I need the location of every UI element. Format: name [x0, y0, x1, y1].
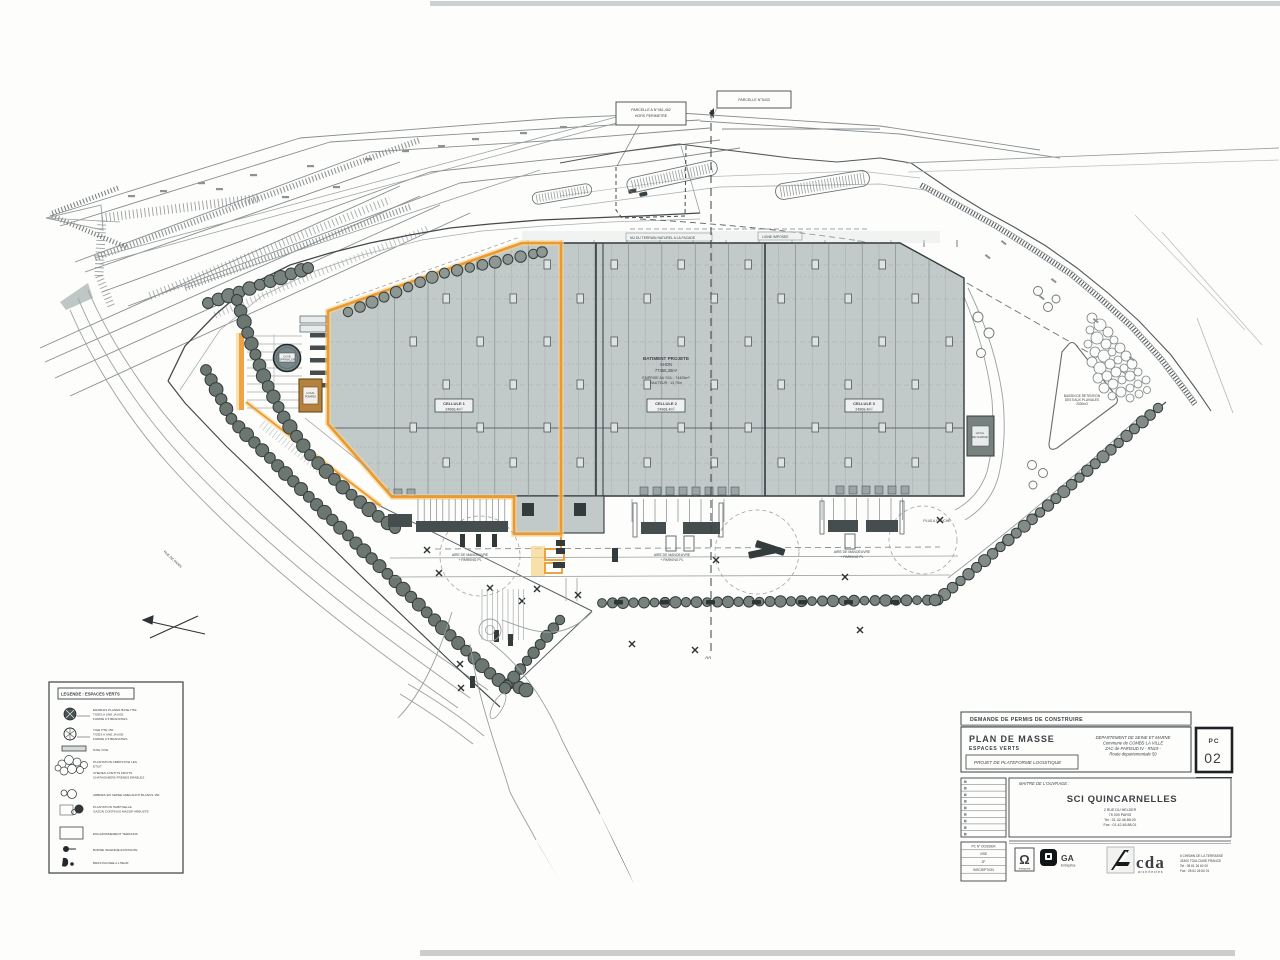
svg-text:architectes: architectes	[1138, 870, 1163, 874]
svg-text:Tel : 01.42.46.88.00: Tel : 01.42.46.88.00	[1104, 818, 1136, 822]
svg-text:AIRE DE MANOEUVRE: AIRE DE MANOEUVRE	[834, 550, 871, 554]
svg-text:EMPRISE AU SOL : 74405m²: EMPRISE AU SOL : 74405m²	[642, 376, 690, 380]
svg-text:DEMANDE DE PERMIS DE CONSTRUIR: DEMANDE DE PERMIS DE CONSTRUIRE	[970, 717, 1083, 723]
svg-text:TIGES A UNE JAUGE: TIGES A UNE JAUGE	[93, 713, 123, 717]
svg-text:LOCAL: LOCAL	[306, 391, 315, 395]
svg-text:CHATAIGNIERS FRENES ERABLES: CHATAIGNIERS FRENES ERABLES	[93, 776, 144, 780]
svg-text:77455,35m²: 77455,35m²	[655, 368, 678, 373]
svg-text:ESPACES VERTS: ESPACES VERTS	[969, 746, 1020, 752]
svg-text:INSCRIPTION: INSCRIPTION	[973, 868, 994, 872]
svg-text:CELLULE 2: CELLULE 2	[655, 401, 678, 406]
svg-text:BORNE INCENDIE EXISTANTE: BORNE INCENDIE EXISTANTE	[93, 848, 137, 852]
svg-text:PROJET DE PLATEFORME LOGISTIQU: PROJET DE PLATEFORME LOGISTIQUE	[974, 760, 1062, 765]
svg-text:PARCELLE N°5433: PARCELLE N°5433	[738, 98, 770, 102]
svg-text:Commune de COMBS LA VILLE: Commune de COMBS LA VILLE	[1103, 741, 1164, 746]
svg-text:CELLULE 1: CELLULE 1	[443, 401, 466, 406]
svg-text:+ PARKING PL: + PARKING PL	[458, 558, 481, 562]
svg-text:FORME A 5 BRANCHES: FORME A 5 BRANCHES	[93, 737, 127, 741]
svg-text:Tel : 05 61 26 60 00: Tel : 05 61 26 60 00	[1180, 864, 1208, 868]
svg-text:GA: GA	[1061, 853, 1074, 863]
svg-text:PLUS A GAUCHE: PLUS A GAUCHE	[923, 519, 951, 523]
svg-text:TIGE HTE 150: TIGE HTE 150	[93, 728, 114, 732]
svg-text:NU DU TERRAIN NATUREL A LA FAC: NU DU TERRAIN NATUREL A LA FACADE	[630, 236, 696, 240]
svg-text:PLAN DE MASSE: PLAN DE MASSE	[969, 734, 1055, 744]
svg-text:LEGENDE : ESPACES VERTS: LEGENDE : ESPACES VERTS	[61, 692, 120, 697]
svg-text:Route departementale 50: Route departementale 50	[1109, 752, 1157, 757]
svg-text:PARCELLE A N°451,452: PARCELLE A N°451,452	[631, 108, 671, 112]
svg-text:ERABLES PLANES BASE HTE: ERABLES PLANES BASE HTE	[93, 708, 137, 712]
svg-text:31500 TOULOUSE FRANCE: 31500 TOULOUSE FRANCE	[1180, 859, 1221, 863]
svg-text:Entreprise: Entreprise	[1061, 864, 1076, 868]
svg-text:Fax : 01.42.46.88.01: Fax : 01.42.46.88.01	[1104, 823, 1137, 827]
svg-text:24868,4m²: 24868,4m²	[657, 408, 675, 412]
svg-text:TIGES A UNE JAUGE: TIGES A UNE JAUGE	[93, 733, 123, 737]
svg-text:AA: AA	[704, 655, 711, 660]
svg-text:CELLULE 3: CELLULE 3	[853, 401, 876, 406]
svg-text:PLANTATION HABITUELLE: PLANTATION HABITUELLE	[93, 805, 132, 809]
svg-text:SHON: SHON	[660, 362, 672, 367]
svg-text:SCI QUINCARNELLES: SCI QUINCARNELLES	[1067, 794, 1177, 805]
svg-text:SPRINKLER: SPRINKLER	[279, 358, 295, 362]
svg-text:ZAC de PARISUD IV - RN19 -: ZAC de PARISUD IV - RN19 -	[1104, 746, 1161, 751]
svg-text:HAIE VIVE: HAIE VIVE	[93, 748, 108, 752]
svg-text:PC: PC	[1208, 738, 1219, 745]
svg-text:AIRE DE MANOEUVRE: AIRE DE MANOEUVRE	[654, 553, 691, 557]
svg-text:2000m3: 2000m3	[1076, 402, 1088, 406]
svg-text:CHENES A PETITS FRUITS: CHENES A PETITS FRUITS	[93, 771, 132, 775]
svg-text:24868,4m²: 24868,4m²	[445, 408, 463, 412]
svg-text:6 CHEMIN DE LA TERRASSE: 6 CHEMIN DE LA TERRASSE	[1180, 854, 1223, 858]
svg-text:DE CHARGE: DE CHARGE	[972, 435, 988, 439]
svg-text:LIGNE IMPOSEE: LIGNE IMPOSEE	[762, 235, 789, 239]
svg-text:02: 02	[1204, 750, 1222, 766]
svg-text:ETUIT: ETUIT	[93, 765, 102, 769]
svg-text:2 RUE DU HELDER: 2 RUE DU HELDER	[1104, 808, 1137, 812]
svg-text:LOCAL: LOCAL	[976, 431, 985, 435]
svg-text:Ω: Ω	[1019, 852, 1029, 867]
svg-text:+ PARKING PL: + PARKING PL	[840, 555, 863, 559]
svg-text:FORME A 5 BRANCHES: FORME A 5 BRANCHES	[93, 717, 127, 721]
svg-text:ENGAZONNEMENT TERRAINS: ENGAZONNEMENT TERRAINS	[93, 832, 138, 836]
svg-text:GAZON CONTINUS MASSIF ARBUSTE: GAZON CONTINUS MASSIF ARBUSTE	[93, 810, 149, 814]
svg-text:PC N° DOSSIER: PC N° DOSSIER	[971, 845, 996, 849]
svg-text:2F: 2F	[982, 860, 986, 864]
svg-text:MAITRE DE L'OUVRAGE :: MAITRE DE L'OUVRAGE :	[1019, 781, 1069, 786]
svg-text:HAUTEUR : 13,70m: HAUTEUR : 13,70m	[650, 381, 682, 385]
svg-text:DEPARTEMENT DE SEINE ET MARNE: DEPARTEMENT DE SEINE ET MARNE	[1096, 735, 1171, 740]
svg-text:Fax : 05 61 26 60 01: Fax : 05 61 26 60 01	[1180, 869, 1209, 873]
svg-text:HORS PERIMETRE: HORS PERIMETRE	[635, 114, 668, 118]
svg-text:+ PARKING PL: + PARKING PL	[660, 558, 683, 562]
svg-text:PLANTATION ARBUSTIVE LES: PLANTATION ARBUSTIVE LES	[93, 760, 137, 764]
svg-text:entrepose: entrepose	[1019, 867, 1031, 871]
svg-text:VISE: VISE	[980, 852, 987, 856]
svg-text:75 009 PARIS: 75 009 PARIS	[1109, 813, 1132, 817]
svg-text:AIRE DE MANOEUVRE: AIRE DE MANOEUVRE	[452, 553, 489, 557]
svg-text:24868,4m²: 24868,4m²	[855, 408, 873, 412]
svg-text:BRAS PAUSEE A LHEUR: BRAS PAUSEE A LHEUR	[93, 861, 129, 865]
svg-text:POMPES: POMPES	[305, 395, 316, 399]
svg-text:BATIMENT PROJETE: BATIMENT PROJETE	[643, 356, 689, 361]
svg-text:ARBRES EN CEPEE AMELANCH BLANC: ARBRES EN CEPEE AMELANCH BLANCS 150	[93, 793, 160, 797]
